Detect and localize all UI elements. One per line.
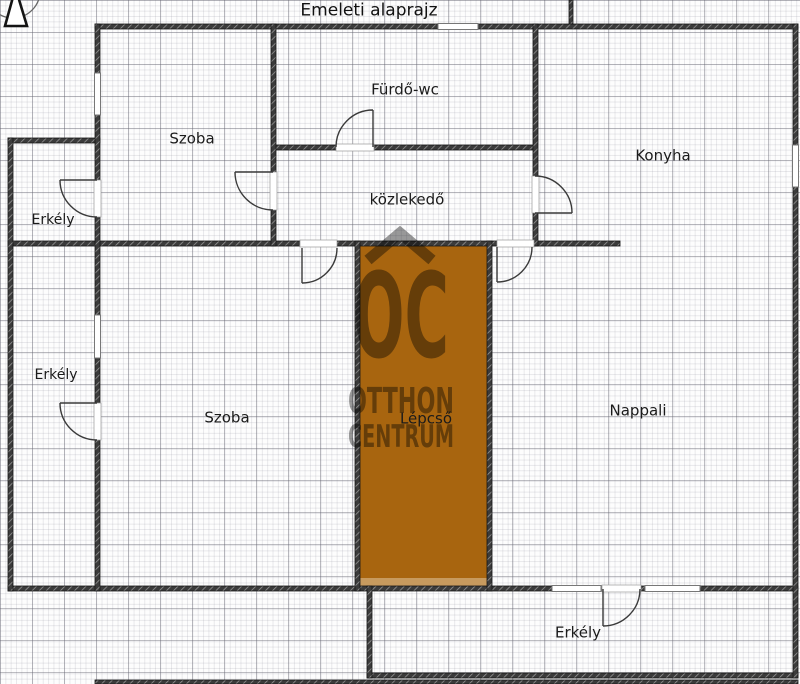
room-label-kozlekedo: közlekedő xyxy=(370,193,445,208)
room-label-szoba-top: Szoba xyxy=(169,132,214,147)
floorplan-canvas: OC OTTHON CENTRUM Emeleti alaprajz Szoba… xyxy=(0,0,800,684)
wall-bathroom-bottom xyxy=(273,145,537,150)
window-kitchen-right xyxy=(793,145,799,187)
door-balcony-mid xyxy=(60,403,97,440)
room-label-szoba-lower: Szoba xyxy=(204,411,249,426)
north-arrow-icon xyxy=(0,0,40,26)
wall-balcony-bottom-bottom xyxy=(367,673,798,678)
opening-balcony-mid xyxy=(94,403,101,440)
door-room-hall xyxy=(235,172,273,210)
opening-room-hall xyxy=(270,172,277,210)
room-label-lepcso: Lépcső xyxy=(400,412,452,427)
window-room-top-left xyxy=(95,73,101,115)
wall-stair-right xyxy=(487,241,492,591)
doors xyxy=(60,110,640,626)
wall-balcony-top-top xyxy=(8,138,100,143)
opening-balcony-bottom xyxy=(602,585,641,592)
opening-hall-room xyxy=(300,240,337,247)
room-label-furdo-wc: Fürdő-wc xyxy=(371,83,439,98)
room-label-erkely-mid: Erkély xyxy=(35,368,78,382)
room-label-konyha: Konyha xyxy=(635,149,690,164)
plan-title: Emeleti alaprajz xyxy=(300,3,437,20)
door-hall-living xyxy=(497,247,532,282)
wall-right-outer xyxy=(793,24,798,678)
window-living-bottom-2 xyxy=(645,586,700,592)
window-balcony-mid xyxy=(95,315,101,358)
room-label-erkely-top: Erkély xyxy=(32,213,75,227)
door-hall-room xyxy=(302,248,337,283)
door-kitchen xyxy=(535,176,572,213)
door-balcony-bottom xyxy=(603,589,640,626)
opening-hall-living xyxy=(497,240,534,247)
opening-kitchen xyxy=(532,176,539,213)
room-label-nappali: Nappali xyxy=(610,404,667,419)
opening-bathroom xyxy=(336,144,374,151)
door-bathroom xyxy=(336,110,373,147)
wall-top-stub xyxy=(569,0,573,24)
window-top-bathroom xyxy=(438,24,478,30)
staircase-bottom-strip xyxy=(360,578,487,586)
window-living-bottom-1 xyxy=(552,586,601,592)
watermark-monogram: OC xyxy=(353,247,449,385)
wall-balcony-bottom-left xyxy=(367,586,372,678)
opening-balcony-top xyxy=(94,180,101,217)
wall-bottom-edge xyxy=(95,680,798,684)
floorplan-drawing: OC OTTHON CENTRUM xyxy=(0,0,800,684)
room-label-erkely-bottom: Erkély xyxy=(555,626,601,641)
wall-room-bath-divider xyxy=(271,24,276,246)
wall-left-outer xyxy=(8,138,13,591)
